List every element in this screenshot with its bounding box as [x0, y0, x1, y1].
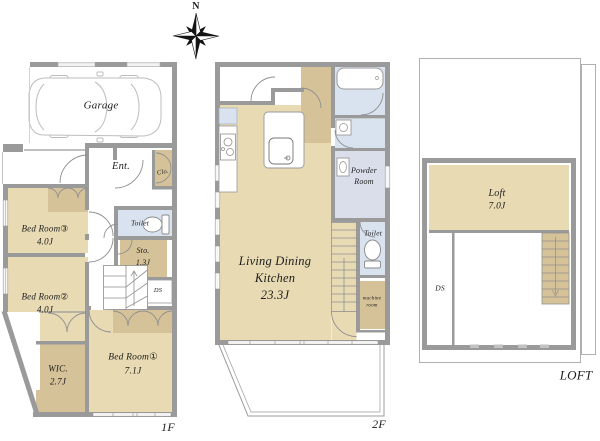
garage-label: Garage [84, 101, 119, 112]
toilet-fixture-2f [365, 240, 381, 268]
bedroom3-size-label: 4.0J [37, 238, 53, 247]
floor-plan-loft [420, 59, 596, 363]
bedroom2-label: Bed Room② [21, 293, 68, 302]
floor-label-1f: 1F [161, 421, 175, 433]
powder-sink-icon [337, 158, 349, 176]
bedroom1-size-label: 7.1J [125, 367, 142, 377]
ds-1f-label: DS [154, 288, 162, 295]
ldk-label-line2: Kitchen [255, 272, 295, 285]
kitchen-sink-icon [269, 138, 293, 164]
machine-room-label-line1: machine [363, 297, 381, 302]
stairs-1f [104, 266, 148, 310]
washbasin-icon [336, 120, 351, 135]
bathtub-icon [337, 68, 383, 89]
entrance-label: Ent. [112, 162, 130, 173]
diagonal-wall-1f [4, 311, 37, 414]
compass-icon [173, 13, 219, 59]
powder-room-label-line1: Powder [351, 167, 377, 175]
floor-plan-page: N Garage Ent. Clo. Toilet Sto. 1.3J DS B… [0, 0, 600, 441]
hall-strip-2f [301, 67, 331, 143]
floor-plan-2f [215, 62, 390, 416]
floorplan-drawing [0, 0, 600, 441]
powder-room-label-line2: Room [354, 178, 373, 186]
compass-north-label: N [192, 2, 199, 12]
floor-label-2f: 2F [372, 418, 386, 430]
garage-shutter [58, 63, 95, 67]
ds-loft-label: DS [435, 284, 445, 292]
ldk-label-line1: Living Dining [239, 255, 311, 268]
loft-size-label: 7.0J [489, 202, 506, 212]
bedroom3-closet [48, 188, 88, 212]
storage-label: Sto. [136, 247, 149, 255]
bedroom3-label: Bed Room③ [21, 225, 68, 234]
roof-outline-offset [582, 65, 596, 355]
toilet-1f-label: Toilet [131, 219, 149, 227]
toilet-2f-label: Toilet [364, 229, 382, 237]
wic-label: WIC. [48, 365, 68, 374]
ldk-size-label: 23.3J [261, 289, 289, 302]
machine-room-label-line2: room [366, 304, 377, 309]
ds-wall-loft [452, 233, 455, 345]
storage-size-label: 1.3J [136, 259, 150, 267]
wic-size-label: 2.7J [50, 378, 66, 387]
bedroom1-label: Bed Room① [108, 353, 158, 363]
stairs-2f [332, 223, 357, 312]
stove-icon [221, 134, 236, 160]
balcony-2f [219, 345, 384, 416]
floor-label-loft: LOFT [560, 369, 593, 382]
garage-shutter [127, 63, 160, 67]
bedroom2-size-label: 4.0J [37, 306, 53, 315]
refrigerator-space [219, 108, 237, 124]
loft-room-label: Loft [489, 189, 506, 199]
stairs-loft [542, 233, 569, 304]
floor-plan-1f [3, 62, 178, 417]
